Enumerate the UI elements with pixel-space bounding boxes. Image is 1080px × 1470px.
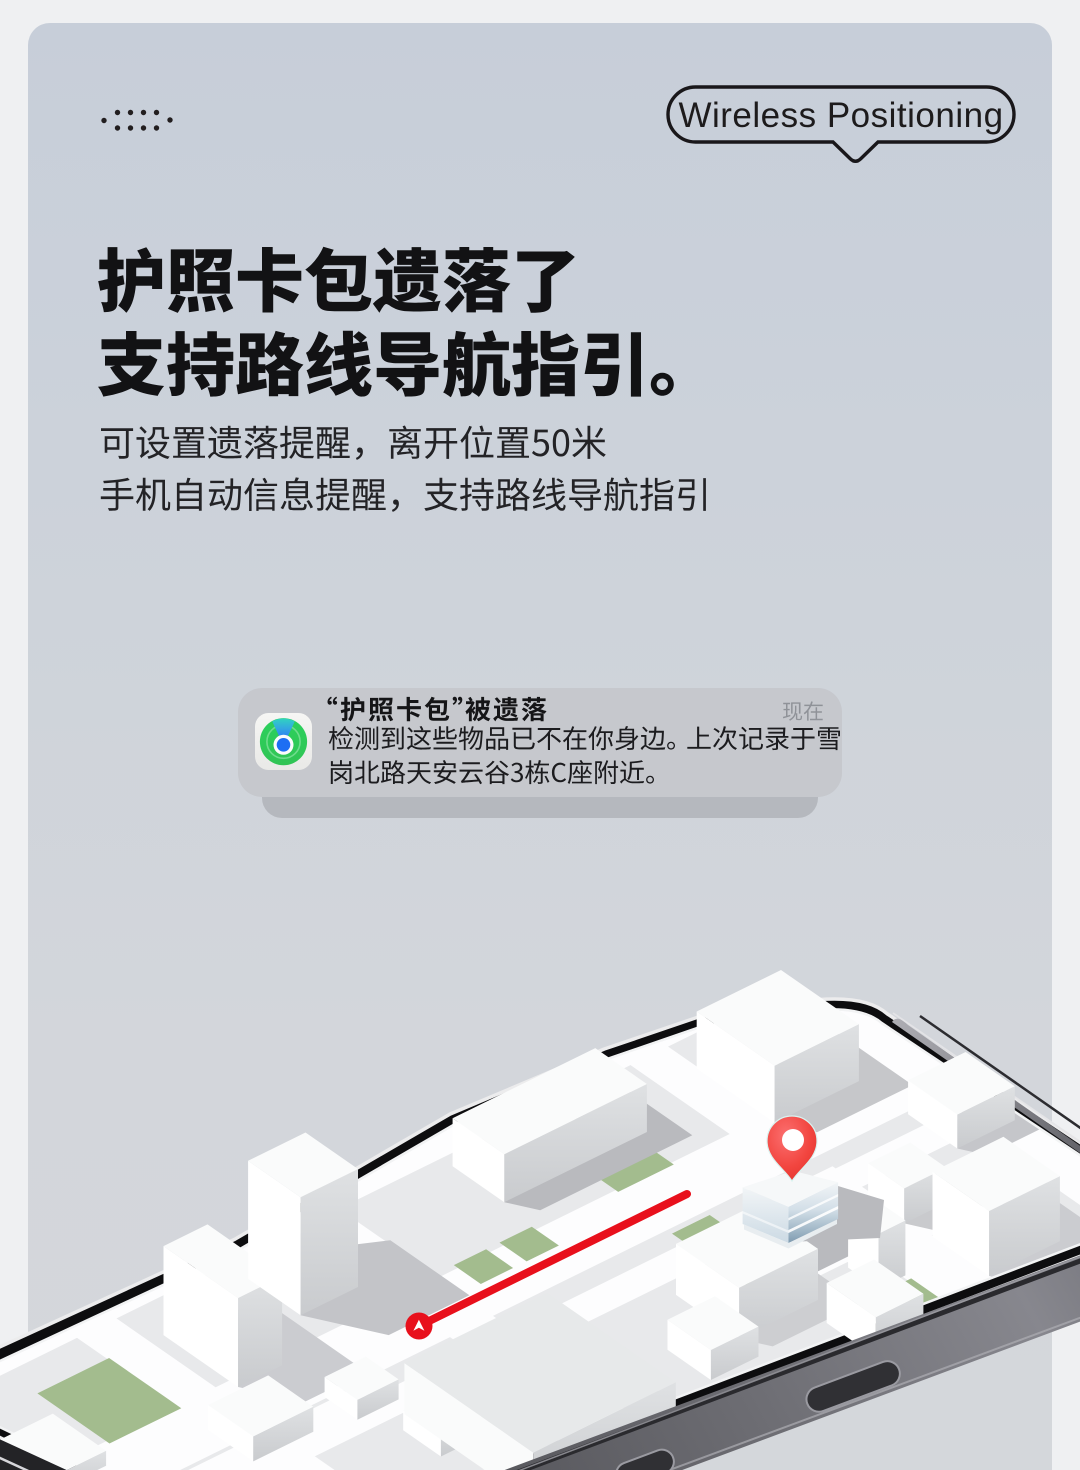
svg-text:Wireless Positioning: Wireless Positioning <box>678 96 1003 135</box>
